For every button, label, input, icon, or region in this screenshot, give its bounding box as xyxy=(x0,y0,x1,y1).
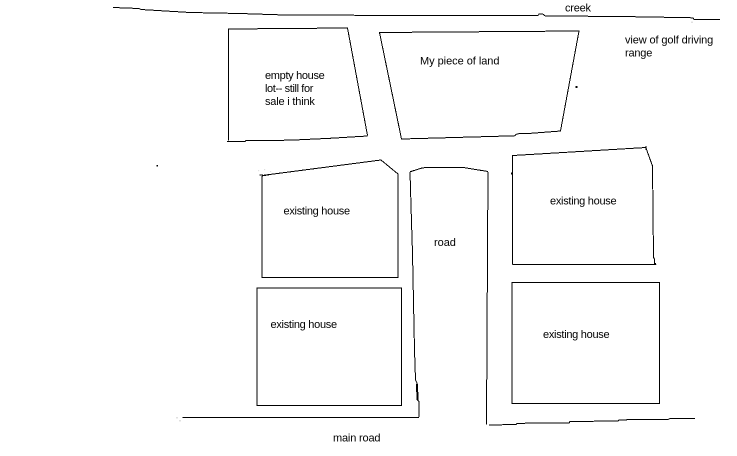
svg-text:existing house: existing house xyxy=(284,206,351,218)
svg-text:creek: creek xyxy=(565,3,591,15)
svg-text:My piece of land: My piece of land xyxy=(420,56,499,68)
svg-text:empty house: empty house xyxy=(265,70,325,82)
svg-text:range: range xyxy=(625,48,652,60)
svg-text:existing house: existing house xyxy=(550,196,617,208)
svg-text:lot-- still for: lot-- still for xyxy=(265,83,314,95)
svg-text:existing house: existing house xyxy=(271,319,338,331)
svg-text:view of golf driving: view of golf driving xyxy=(625,35,713,47)
svg-text:road: road xyxy=(434,237,456,249)
svg-text:main road: main road xyxy=(333,433,380,445)
svg-text:sale i think: sale i think xyxy=(265,96,315,108)
svg-text:existing house: existing house xyxy=(543,329,610,341)
